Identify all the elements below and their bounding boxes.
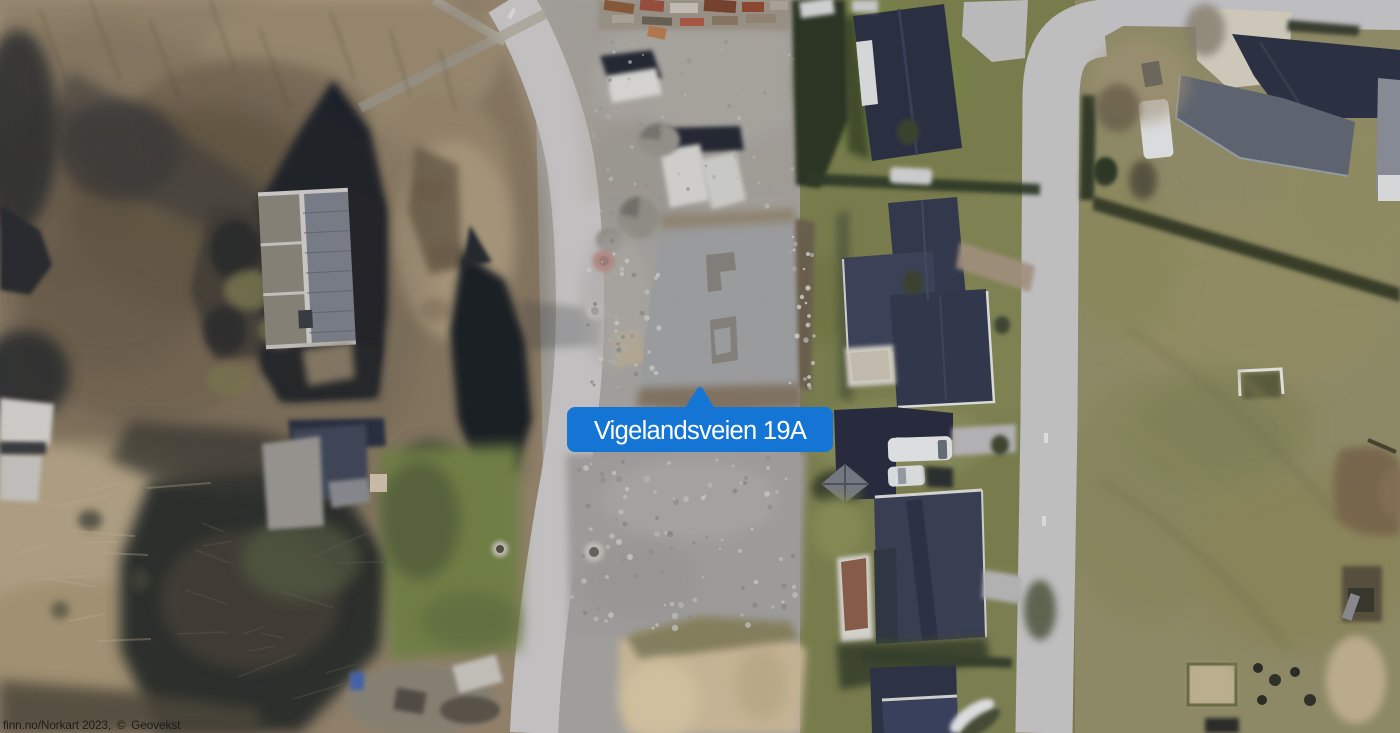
svg-text:finn.no/Norkart 2023, © Geovek: finn.no/Norkart 2023, © Geovekst bbox=[3, 718, 181, 732]
svg-text:Vigelandsveien 19A: Vigelandsveien 19A bbox=[594, 417, 807, 445]
